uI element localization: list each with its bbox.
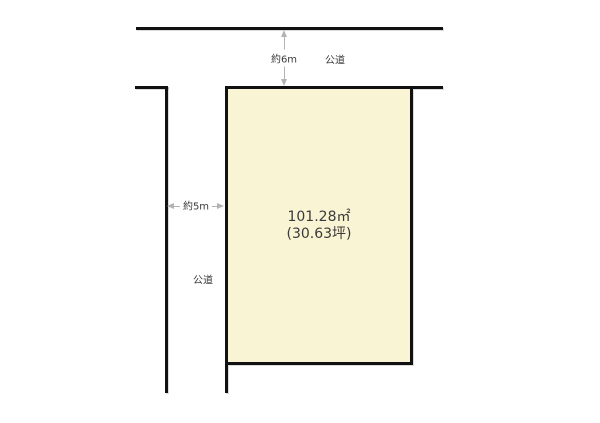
land-plot-diagram: 101.28㎡ (30.63坪) 約6m 公道 約5m 公道 — [0, 0, 600, 423]
arrow-up-icon — [281, 30, 287, 37]
plot-left-boundary-extension-line — [225, 365, 228, 393]
plot-area-square-meters: 101.28㎡ — [286, 209, 351, 226]
arrow-right-icon — [217, 203, 224, 209]
top-road-near-edge-right-line — [413, 86, 443, 89]
top-road-width-label: 約6m — [268, 50, 300, 67]
land-plot: 101.28㎡ (30.63坪) — [225, 86, 413, 365]
left-road-corner-line — [135, 86, 168, 89]
left-road-edge-line — [165, 86, 168, 393]
plot-area-tsubo: (30.63坪) — [286, 226, 351, 243]
arrow-left-icon — [167, 203, 174, 209]
top-road-label: 公道 — [325, 52, 345, 67]
arrow-down-icon — [281, 79, 287, 86]
left-road-width-label: 約5m — [180, 197, 212, 214]
plot-area-label: 101.28㎡ (30.63坪) — [286, 209, 351, 243]
top-road-far-edge-line — [136, 27, 443, 30]
left-road-label: 公道 — [193, 272, 213, 287]
